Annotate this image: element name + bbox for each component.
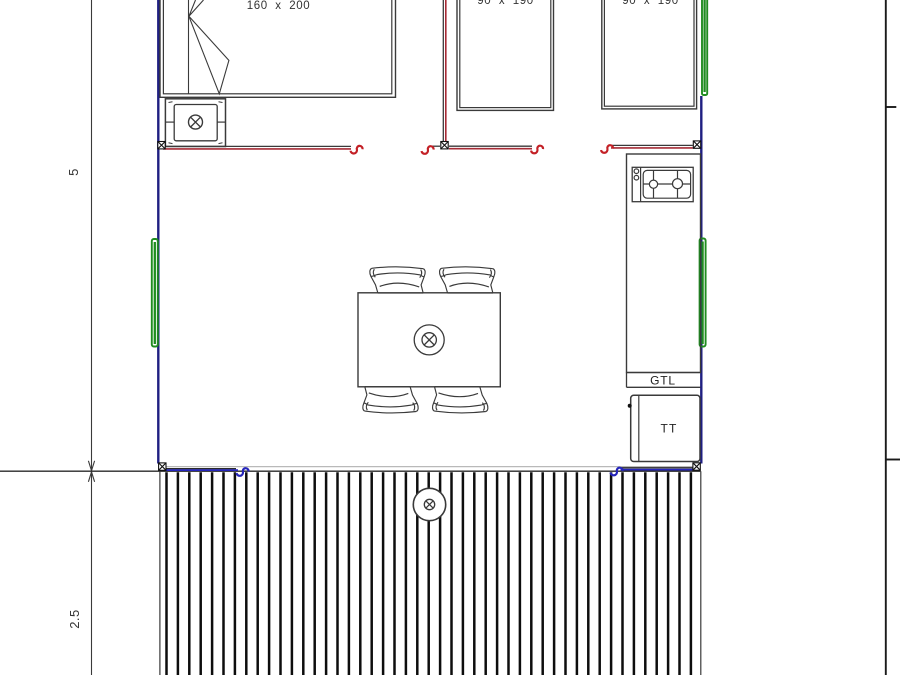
svg-text:TT: TT: [660, 422, 677, 436]
svg-text:160 x 200: 160 x 200: [247, 0, 311, 12]
svg-text:5: 5: [66, 168, 81, 176]
svg-text:GTL: GTL: [650, 374, 676, 388]
svg-text:90 x 190: 90 x 190: [477, 0, 534, 7]
svg-text:90 x 190: 90 x 190: [622, 0, 679, 7]
svg-text:2.5: 2.5: [67, 609, 82, 629]
